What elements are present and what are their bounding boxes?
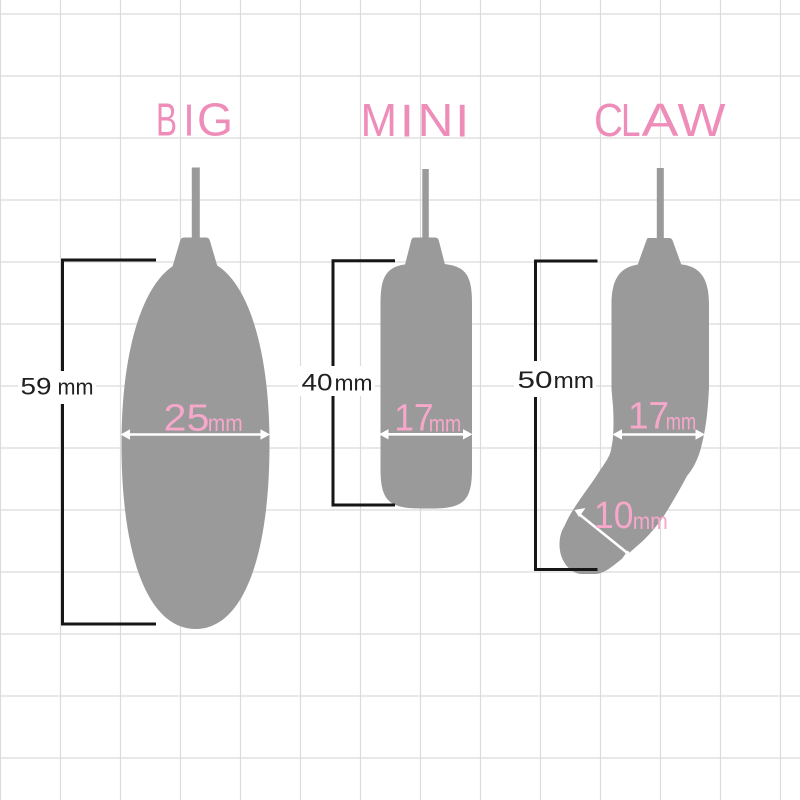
- svg-text:mm: mm: [633, 508, 668, 534]
- svg-text:M: M: [361, 94, 398, 146]
- svg-text:mm: mm: [666, 409, 697, 435]
- svg-text:50: 50: [518, 367, 553, 394]
- svg-text:L: L: [621, 94, 641, 146]
- svg-text:17: 17: [628, 396, 669, 438]
- svg-text:G: G: [197, 94, 233, 146]
- svg-text:59: 59: [21, 374, 52, 401]
- svg-text:17: 17: [394, 398, 434, 440]
- svg-text:mm: mm: [429, 410, 462, 436]
- svg-text:40: 40: [302, 370, 333, 397]
- svg-text:N: N: [418, 94, 454, 146]
- svg-text:mm: mm: [208, 410, 243, 436]
- svg-text:A: A: [642, 94, 679, 146]
- svg-text:25: 25: [164, 398, 210, 440]
- svg-text:W: W: [678, 94, 727, 146]
- svg-text:mm: mm: [554, 368, 595, 393]
- svg-text:C: C: [594, 94, 623, 146]
- svg-text:mm: mm: [335, 371, 373, 396]
- svg-text:mm: mm: [58, 375, 94, 400]
- svg-text:10: 10: [594, 495, 634, 537]
- svg-text:B: B: [156, 94, 177, 146]
